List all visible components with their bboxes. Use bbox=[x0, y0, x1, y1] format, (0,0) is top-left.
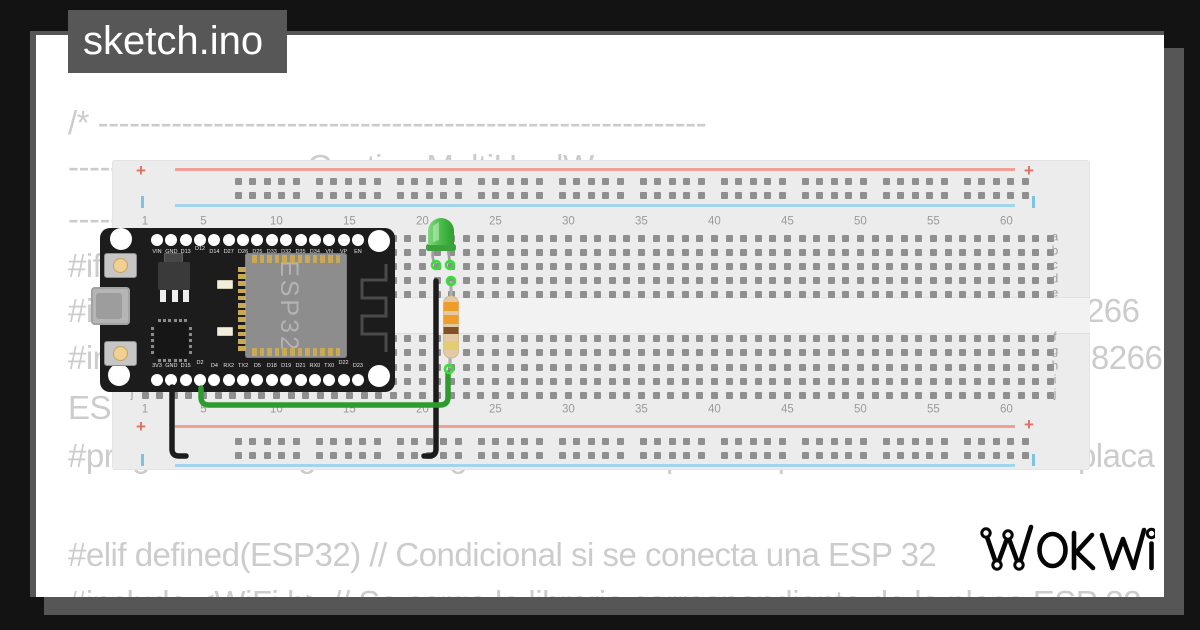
breadboard-hole bbox=[653, 235, 660, 242]
breadboard-hole bbox=[404, 277, 411, 284]
rail-hole bbox=[897, 452, 904, 459]
column-number: 5 bbox=[200, 405, 206, 416]
rail-hole bbox=[536, 438, 543, 445]
rail-hole bbox=[249, 192, 256, 199]
breadboard-hole bbox=[726, 291, 733, 298]
rail-hole bbox=[478, 178, 485, 185]
breadboard-hole bbox=[492, 349, 499, 356]
rail-hole bbox=[330, 178, 337, 185]
breadboard-hole bbox=[419, 335, 426, 342]
breadboard-hole bbox=[726, 277, 733, 284]
breadboard-hole bbox=[828, 277, 835, 284]
module-pin bbox=[238, 274, 246, 279]
esp32-board[interactable]: ESP32 VINGNDD13D12D14D27D26D25D33D32D35D… bbox=[100, 228, 395, 392]
mount-hole bbox=[108, 364, 130, 386]
breadboard-hole bbox=[1003, 378, 1010, 385]
rail-hole bbox=[293, 192, 300, 199]
rail-hole bbox=[845, 178, 852, 185]
pin-label: EN bbox=[354, 249, 362, 255]
column-number: 1 bbox=[142, 405, 148, 416]
breadboard-hole bbox=[769, 335, 776, 342]
breadboard-hole bbox=[477, 364, 484, 371]
module-pin bbox=[275, 348, 280, 356]
breadboard-hole bbox=[536, 364, 543, 371]
pin-d5[interactable] bbox=[251, 374, 263, 386]
rail-hole bbox=[698, 438, 705, 445]
breadboard-hole bbox=[930, 378, 937, 385]
rail-hole bbox=[654, 178, 661, 185]
rail-hole bbox=[698, 192, 705, 199]
column-number: 40 bbox=[708, 405, 721, 416]
breadboard-hole bbox=[799, 392, 806, 399]
power-led bbox=[217, 280, 233, 289]
pin-gnd[interactable] bbox=[165, 374, 177, 386]
breadboard-hole bbox=[623, 349, 630, 356]
pin-d34[interactable] bbox=[309, 234, 321, 246]
breadboard-hole bbox=[1003, 364, 1010, 371]
rail-hole bbox=[492, 178, 499, 185]
chip-pin bbox=[158, 359, 161, 362]
row-letter: a bbox=[1052, 233, 1058, 244]
breadboard-hole bbox=[594, 364, 601, 371]
breadboard-hole bbox=[1032, 392, 1039, 399]
breadboard-hole bbox=[755, 349, 762, 356]
pin-label: D4 bbox=[211, 363, 218, 369]
rail-hole bbox=[264, 438, 271, 445]
breadboard-hole bbox=[959, 335, 966, 342]
breadboard-hole bbox=[857, 277, 864, 284]
breadboard-hole bbox=[609, 349, 616, 356]
column-number: 50 bbox=[854, 405, 867, 416]
rail-hole bbox=[249, 438, 256, 445]
breadboard-hole bbox=[521, 364, 528, 371]
rail-hole bbox=[278, 438, 285, 445]
pin-d12[interactable] bbox=[194, 234, 206, 246]
rail-hole bbox=[602, 178, 609, 185]
chip-pin bbox=[163, 319, 166, 322]
rail-hole bbox=[993, 438, 1000, 445]
breadboard-hole bbox=[872, 249, 879, 256]
breadboard-hole bbox=[580, 235, 587, 242]
rail-hole bbox=[249, 178, 256, 185]
breadboard-hole bbox=[726, 249, 733, 256]
breadboard-hole bbox=[404, 235, 411, 242]
chip-pin bbox=[158, 319, 161, 322]
rail-hole bbox=[374, 192, 381, 199]
rail-hole bbox=[912, 438, 919, 445]
pin-en[interactable] bbox=[352, 234, 364, 246]
breadboard-hole bbox=[434, 249, 441, 256]
breadboard-hole bbox=[477, 277, 484, 284]
breadboard-hole bbox=[1032, 249, 1039, 256]
breadboard-hole bbox=[740, 364, 747, 371]
breadboard-hole bbox=[448, 364, 455, 371]
pin-d21[interactable] bbox=[295, 374, 307, 386]
breadboard-hole bbox=[609, 277, 616, 284]
rail-hole bbox=[330, 192, 337, 199]
breadboard-hole bbox=[1018, 277, 1025, 284]
breadboard-hole bbox=[463, 335, 470, 342]
pin-label: D2 bbox=[197, 360, 204, 366]
pin-d33[interactable] bbox=[266, 234, 278, 246]
rail-hole bbox=[359, 192, 366, 199]
pin-d18[interactable] bbox=[266, 374, 278, 386]
breadboard-hole bbox=[653, 335, 660, 342]
breadboard-hole bbox=[653, 277, 660, 284]
pin-gnd[interactable] bbox=[165, 234, 177, 246]
breadboard-hole bbox=[390, 392, 397, 399]
breadboard-hole bbox=[974, 364, 981, 371]
rail-hole bbox=[845, 452, 852, 459]
breadboard-hole bbox=[404, 263, 411, 270]
module-pin bbox=[238, 325, 246, 330]
breadboard-hole bbox=[609, 235, 616, 242]
rail-hole bbox=[845, 192, 852, 199]
rail-hole bbox=[278, 192, 285, 199]
breadboard-hole bbox=[974, 378, 981, 385]
breadboard-hole bbox=[886, 349, 893, 356]
chip-label: ESP32 bbox=[276, 254, 302, 359]
breadboard-hole bbox=[434, 335, 441, 342]
breadboard-hole bbox=[726, 263, 733, 270]
logo-o bbox=[1040, 534, 1066, 566]
breadboard-hole bbox=[711, 291, 718, 298]
breadboard-hole bbox=[565, 378, 572, 385]
breadboard-hole bbox=[361, 392, 368, 399]
rail-hole bbox=[426, 438, 433, 445]
rail-hole bbox=[831, 438, 838, 445]
pin-tx0[interactable] bbox=[323, 374, 335, 386]
breadboard-hole bbox=[740, 335, 747, 342]
breadboard-hole bbox=[857, 249, 864, 256]
pin-d22[interactable] bbox=[338, 374, 350, 386]
breadboard-hole bbox=[419, 249, 426, 256]
pin-3v3[interactable] bbox=[151, 374, 163, 386]
rail-hole bbox=[640, 192, 647, 199]
breadboard-hole bbox=[565, 335, 572, 342]
rail-hole bbox=[669, 438, 676, 445]
status-led bbox=[217, 327, 233, 336]
breadboard-hole bbox=[404, 249, 411, 256]
pin-d23[interactable] bbox=[352, 374, 364, 386]
pin-d19[interactable] bbox=[280, 374, 292, 386]
breadboard-hole bbox=[755, 378, 762, 385]
breadboard-hole bbox=[1018, 291, 1025, 298]
rail-hole bbox=[507, 192, 514, 199]
wokwi-preview: /* -------------------------------------… bbox=[0, 0, 1200, 630]
rail-hole bbox=[640, 178, 647, 185]
breadboard-hole bbox=[915, 364, 922, 371]
rail-hole bbox=[721, 192, 728, 199]
rail-hole bbox=[426, 452, 433, 459]
pin-d32[interactable] bbox=[280, 234, 292, 246]
pin-label: D27 bbox=[224, 249, 234, 255]
rail-hole bbox=[860, 452, 867, 459]
rail-hole bbox=[345, 192, 352, 199]
breadboard-hole bbox=[857, 364, 864, 371]
rail-hole bbox=[374, 178, 381, 185]
breadboard-hole bbox=[901, 378, 908, 385]
breadboard-hole bbox=[769, 235, 776, 242]
breadboard-hole bbox=[1018, 364, 1025, 371]
pin-d26[interactable] bbox=[237, 234, 249, 246]
pin-vp[interactable] bbox=[338, 234, 350, 246]
breadboard-hole bbox=[536, 263, 543, 270]
breadboard-hole bbox=[215, 392, 222, 399]
breadboard-hole bbox=[638, 291, 645, 298]
chip-pin bbox=[151, 333, 154, 336]
regulator-leg bbox=[160, 290, 166, 302]
breadboard-hole bbox=[886, 249, 893, 256]
breadboard-hole bbox=[536, 335, 543, 342]
breadboard-hole bbox=[711, 235, 718, 242]
rail-hole bbox=[926, 438, 933, 445]
rail-hole bbox=[359, 178, 366, 185]
breadboard-hole bbox=[477, 291, 484, 298]
breadboard-hole bbox=[507, 364, 514, 371]
breadboard-hole bbox=[901, 349, 908, 356]
pin-label: TX0 bbox=[324, 363, 334, 369]
breadboard-hole bbox=[667, 335, 674, 342]
pin-d2[interactable] bbox=[194, 374, 206, 386]
breadboard-hole bbox=[740, 235, 747, 242]
module-pin bbox=[260, 255, 265, 263]
module-pin bbox=[313, 348, 318, 356]
breadboard-hole bbox=[784, 392, 791, 399]
breadboard-hole bbox=[842, 235, 849, 242]
breadboard-hole bbox=[638, 378, 645, 385]
rail-hole bbox=[330, 438, 337, 445]
breadboard-hole bbox=[594, 249, 601, 256]
pin-d4[interactable] bbox=[208, 374, 220, 386]
regulator-leg bbox=[172, 290, 178, 302]
pin-rx2[interactable] bbox=[223, 374, 235, 386]
breadboard-hole bbox=[901, 263, 908, 270]
pin-d14[interactable] bbox=[208, 234, 220, 246]
breadboard-hole bbox=[434, 291, 441, 298]
rail-hole bbox=[993, 452, 1000, 459]
module-pin bbox=[275, 255, 280, 263]
rail-hole bbox=[492, 192, 499, 199]
breadboard-hole bbox=[550, 335, 557, 342]
antenna-trace bbox=[350, 258, 395, 360]
breadboard-hole bbox=[945, 249, 952, 256]
breadboard-hole bbox=[945, 235, 952, 242]
rail-hole bbox=[779, 192, 786, 199]
rail-hole bbox=[802, 452, 809, 459]
pin-d25[interactable] bbox=[251, 234, 263, 246]
breadboard-hole bbox=[434, 277, 441, 284]
column-number: 55 bbox=[927, 405, 940, 416]
rail-hole bbox=[521, 178, 528, 185]
rail-hole bbox=[345, 178, 352, 185]
button-cap bbox=[113, 346, 128, 361]
breadboard-hole bbox=[463, 263, 470, 270]
rail-hole bbox=[735, 452, 742, 459]
breadboard-hole bbox=[653, 392, 660, 399]
breadboard-hole bbox=[594, 335, 601, 342]
breadboard-hole bbox=[842, 249, 849, 256]
breadboard-hole bbox=[536, 378, 543, 385]
rail-hole bbox=[816, 438, 823, 445]
pin-rx0[interactable] bbox=[309, 374, 321, 386]
breadboard-hole bbox=[696, 335, 703, 342]
breadboard-hole bbox=[915, 277, 922, 284]
breadboard-hole bbox=[813, 392, 820, 399]
pin-label: D22 bbox=[339, 360, 349, 366]
column-number: 30 bbox=[562, 405, 575, 416]
breadboard-hole bbox=[258, 392, 265, 399]
pin-vn[interactable] bbox=[323, 234, 335, 246]
rail-hole bbox=[278, 178, 285, 185]
rail-hole bbox=[764, 438, 771, 445]
breadboard-hole bbox=[974, 392, 981, 399]
rail-hole bbox=[654, 192, 661, 199]
breadboard-hole bbox=[857, 291, 864, 298]
breadboard-hole bbox=[550, 249, 557, 256]
breadboard-hole bbox=[521, 378, 528, 385]
breadboard-hole bbox=[492, 335, 499, 342]
column-number: 5 bbox=[200, 217, 206, 228]
breadboard-hole bbox=[404, 392, 411, 399]
rail-hole bbox=[735, 178, 742, 185]
pin-d15[interactable] bbox=[180, 374, 192, 386]
rail-hole bbox=[764, 192, 771, 199]
breadboard-hole bbox=[930, 263, 937, 270]
breadboard-hole bbox=[521, 335, 528, 342]
breadboard-hole bbox=[609, 291, 616, 298]
breadboard-hole bbox=[448, 291, 455, 298]
module-pin bbox=[298, 255, 303, 263]
breadboard-hole bbox=[915, 335, 922, 342]
column-number: 15 bbox=[343, 405, 356, 416]
logo-w2 bbox=[1102, 530, 1144, 568]
module-pin bbox=[238, 296, 246, 301]
module-pin bbox=[320, 255, 325, 263]
rail-hole bbox=[698, 452, 705, 459]
pin-label: GND bbox=[165, 363, 177, 369]
rail-hole bbox=[683, 178, 690, 185]
chip-pin bbox=[151, 351, 154, 354]
row-letter: c bbox=[1052, 261, 1058, 272]
rail-hole bbox=[411, 438, 418, 445]
module-pin bbox=[267, 348, 272, 356]
column-number: 40 bbox=[708, 217, 721, 228]
module-pin bbox=[267, 255, 272, 263]
rail-hole bbox=[440, 178, 447, 185]
pin-label: TX2 bbox=[238, 363, 248, 369]
breadboard-hole bbox=[711, 277, 718, 284]
rail-hole bbox=[802, 178, 809, 185]
breadboard-hole bbox=[842, 291, 849, 298]
breadboard-hole bbox=[901, 249, 908, 256]
breadboard-hole bbox=[594, 291, 601, 298]
breadboard-hole bbox=[696, 378, 703, 385]
rail-hole bbox=[1007, 438, 1014, 445]
breadboard-hole bbox=[872, 364, 879, 371]
column-number: 1 bbox=[142, 217, 148, 228]
rail-hole bbox=[897, 192, 904, 199]
module-pin bbox=[282, 348, 287, 356]
reset-button[interactable] bbox=[104, 341, 137, 366]
rail-hole bbox=[669, 192, 676, 199]
rail-hole bbox=[264, 178, 271, 185]
breadboard-hole bbox=[419, 277, 426, 284]
pin-label: GND bbox=[165, 249, 177, 255]
breadboard-hole bbox=[580, 392, 587, 399]
breadboard-hole bbox=[404, 378, 411, 385]
breadboard-hole bbox=[740, 291, 747, 298]
rail-hole bbox=[397, 452, 404, 459]
breadboard-hole bbox=[638, 364, 645, 371]
breadboard-hole bbox=[769, 277, 776, 284]
pin-tx2[interactable] bbox=[237, 374, 249, 386]
breadboard-hole bbox=[565, 392, 572, 399]
module-pin bbox=[305, 348, 310, 356]
rail-hole bbox=[278, 452, 285, 459]
breadboard-hole bbox=[171, 392, 178, 399]
rail-hole bbox=[941, 192, 948, 199]
breadboard-hole bbox=[594, 392, 601, 399]
breadboard-hole bbox=[799, 249, 806, 256]
rail-hole bbox=[926, 178, 933, 185]
breadboard-hole bbox=[857, 335, 864, 342]
breadboard-hole bbox=[536, 277, 543, 284]
breadboard-hole bbox=[609, 263, 616, 270]
module-pin bbox=[298, 348, 303, 356]
module-pin bbox=[336, 255, 341, 263]
breadboard-hole bbox=[244, 392, 251, 399]
rail-hole bbox=[507, 438, 514, 445]
rail-hole bbox=[1022, 438, 1029, 445]
rail-hole bbox=[669, 452, 676, 459]
rail-hole bbox=[235, 178, 242, 185]
breadboard-hole bbox=[638, 392, 645, 399]
chip-pin bbox=[163, 359, 166, 362]
breadboard-hole bbox=[930, 291, 937, 298]
breadboard-hole bbox=[638, 263, 645, 270]
breadboard-hole bbox=[828, 335, 835, 342]
breadboard-hole bbox=[945, 291, 952, 298]
rail-hole bbox=[521, 438, 528, 445]
breadboard-hole bbox=[536, 349, 543, 356]
pin-d27[interactable] bbox=[223, 234, 235, 246]
breadboard-hole bbox=[740, 349, 747, 356]
breadboard-hole bbox=[842, 349, 849, 356]
rail-hole bbox=[397, 438, 404, 445]
breadboard-hole bbox=[682, 291, 689, 298]
rail-hole bbox=[411, 192, 418, 199]
column-number: 20 bbox=[416, 217, 429, 228]
breadboard-hole bbox=[580, 249, 587, 256]
breadboard-hole bbox=[1032, 349, 1039, 356]
rail-hole bbox=[478, 438, 485, 445]
breadboard-hole bbox=[623, 235, 630, 242]
pin-vin[interactable] bbox=[151, 234, 163, 246]
breadboard-hole bbox=[988, 277, 995, 284]
pin-d35[interactable] bbox=[295, 234, 307, 246]
rail-hole bbox=[941, 178, 948, 185]
breadboard-hole bbox=[915, 392, 922, 399]
pin-d13[interactable] bbox=[180, 234, 192, 246]
breadboard-hole bbox=[799, 235, 806, 242]
breadboard-hole bbox=[682, 249, 689, 256]
boot-button[interactable] bbox=[104, 253, 137, 278]
rail-hole bbox=[374, 438, 381, 445]
rail-hole bbox=[617, 178, 624, 185]
breadboard-hole bbox=[667, 263, 674, 270]
rail-hole bbox=[860, 192, 867, 199]
